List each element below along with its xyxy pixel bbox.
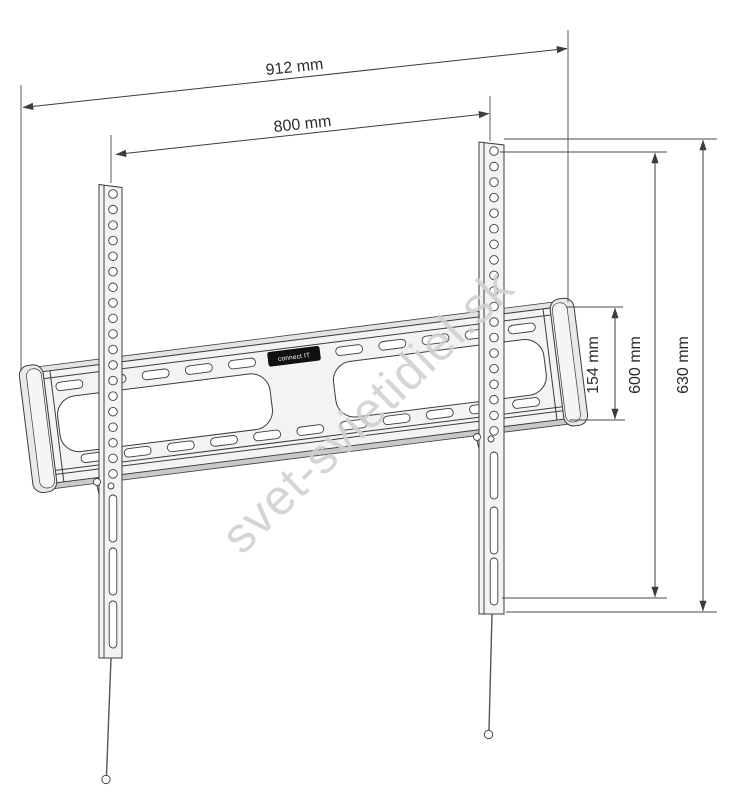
right-rail-hole bbox=[490, 411, 499, 420]
left-rail-hole bbox=[109, 267, 118, 276]
left-rail-hole bbox=[109, 392, 118, 401]
dimension-label-mount-height: 600 mm bbox=[627, 336, 644, 394]
dimension-label-overall-height: 630 mm bbox=[675, 336, 692, 394]
right-rail-hole bbox=[490, 178, 499, 187]
left-rail-hole bbox=[109, 299, 118, 308]
left-rail-hole bbox=[109, 423, 118, 432]
left-rail-hole bbox=[109, 314, 118, 323]
right-rail-hole bbox=[490, 333, 499, 342]
left-rail-slot bbox=[109, 548, 117, 595]
left-rail-hole bbox=[109, 190, 118, 199]
left-rail-hole bbox=[109, 236, 118, 245]
right-rail-hole bbox=[490, 380, 499, 389]
right-rail-hole bbox=[490, 349, 499, 358]
right-rail-slot bbox=[490, 558, 498, 605]
right-rail-hole bbox=[490, 209, 499, 218]
left-rail-hole bbox=[109, 221, 118, 230]
left-rail-hole bbox=[109, 361, 118, 370]
right-rail-hole bbox=[490, 193, 499, 202]
left-rail-hole bbox=[109, 345, 118, 354]
dimension-label-mount-width: 800 mm bbox=[273, 113, 332, 136]
left-rail-hole bbox=[109, 454, 118, 463]
left-rail-hole bbox=[109, 205, 118, 214]
right-rail-hole bbox=[490, 240, 499, 249]
right-pull-cord bbox=[489, 614, 492, 730]
bracket-dimension-drawing: connect IT bbox=[0, 0, 732, 800]
left-rail-slot bbox=[109, 601, 117, 648]
right-rail-slot bbox=[490, 507, 498, 554]
right-rail-hole bbox=[490, 256, 499, 265]
right-rail-hole bbox=[490, 427, 499, 436]
right-rail-hole bbox=[490, 147, 499, 156]
right-rail bbox=[474, 142, 505, 739]
left-rail-hole bbox=[109, 283, 118, 292]
right-rail-hole bbox=[490, 224, 499, 233]
right-rail-slot-column bbox=[490, 452, 498, 605]
left-rail-hole bbox=[109, 330, 118, 339]
left-rail-slot bbox=[109, 495, 117, 542]
left-rail-hole bbox=[109, 407, 118, 416]
right-rail-hole bbox=[490, 162, 499, 171]
dimension-label-plate-height: 154 mm bbox=[585, 336, 602, 394]
left-rail bbox=[94, 185, 123, 784]
right-pull-cord-ball bbox=[484, 730, 492, 738]
right-rail-hole bbox=[490, 364, 499, 373]
left-rail-slot-column bbox=[109, 495, 117, 648]
left-pull-cord bbox=[107, 658, 112, 775]
dimension-mount-width: 800 mm bbox=[111, 96, 490, 183]
right-rail-hole bbox=[490, 396, 499, 405]
right-rail-slot bbox=[490, 452, 498, 499]
left-pull-cord-ball bbox=[102, 775, 110, 783]
technical-drawing-page: connect IT bbox=[0, 0, 732, 800]
left-rail-hole bbox=[109, 252, 118, 261]
left-rail-hole bbox=[109, 470, 118, 479]
left-rail-hole bbox=[109, 376, 118, 385]
left-rail-hole bbox=[109, 439, 118, 448]
